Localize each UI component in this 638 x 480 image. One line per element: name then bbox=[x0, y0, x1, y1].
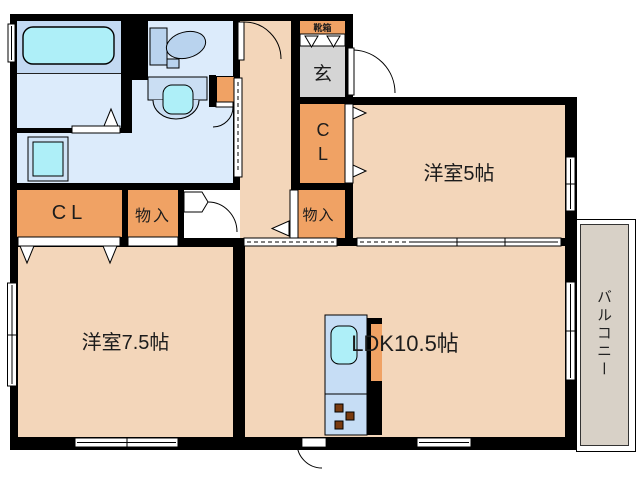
balcony-floor bbox=[580, 224, 629, 446]
closet-room5 bbox=[300, 104, 345, 183]
floor-plan: 靴箱 玄 CL 物入 CL 物入 洋室5帖 洋室7.5帖 LDK10.5帖 バル… bbox=[0, 0, 638, 480]
washroom-cabinet bbox=[216, 76, 235, 104]
kitchen-counter-side bbox=[371, 324, 382, 381]
west-room-5 bbox=[353, 105, 565, 238]
room75-door-zone bbox=[184, 190, 243, 238]
entrance-genkan bbox=[300, 46, 345, 97]
storage-2 bbox=[298, 190, 345, 238]
wall-stub-washroom bbox=[209, 75, 216, 107]
shoe-box bbox=[300, 21, 345, 34]
storage-1 bbox=[128, 190, 178, 237]
washroom-lower bbox=[17, 133, 133, 183]
closet-main bbox=[17, 190, 122, 237]
bathroom-washing-area bbox=[17, 73, 121, 128]
bathroom-tub-area bbox=[17, 21, 121, 73]
hallway bbox=[240, 21, 291, 238]
entrance-door bbox=[348, 48, 395, 95]
ldk-room bbox=[245, 246, 565, 437]
toilet-room bbox=[148, 21, 233, 80]
west-room-7-5 bbox=[18, 247, 233, 437]
